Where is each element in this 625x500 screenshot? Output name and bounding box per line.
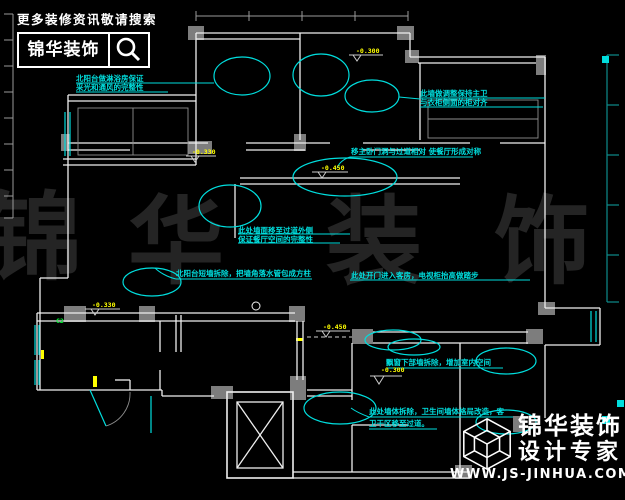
level-marker-1: -0.300 [356,47,379,55]
footer-brand: 锦华装饰 [518,414,622,438]
note-north-balcony: 北阳台短墙拆除，把墙角落水管包成方柱 [176,269,311,278]
note-leaders [76,83,545,429]
note-dining-wall: 此处墙面移至过道外侧保证餐厅空间的完整性 [238,226,313,244]
magnifier-icon [108,34,148,66]
level-marker-5: -0.450 [323,323,346,331]
right-ruler [607,55,619,302]
level-marker-4: -0.330 [92,301,115,309]
window-tag: C2 [56,317,64,325]
banner-tagline: 更多装修资讯敬请搜索 [17,9,157,28]
brand-search-box: 锦华装饰 [17,32,150,68]
level-marker-6: -0.300 [381,366,404,374]
note-balcony-shower: 北阳台做淋浴房保证采光和通风的完整性 [76,74,144,92]
floorplan-canvas: 锦 华 装 饰 [0,0,625,500]
left-ruler [4,14,13,218]
note-master-bath-wall: 此墙做调整保持主卫与衣柜侧面的柜对齐 [420,89,488,107]
footer-url: WWW.JS-JINHUA.COM [450,467,623,482]
company-logo: 锦华装饰 设计专家 WWW.JS-JINHUA.COM [448,390,625,500]
note-guest-room-door: 此处开门进入客房，电视柜抬高做踏步 [351,271,479,280]
revision-clouds [123,54,536,434]
window-markers [602,56,624,424]
search-banner: 更多装修资讯敬请搜索 锦华装饰 [17,9,157,68]
footer-slogan: 设计专家 [518,441,622,463]
brand-name: 锦华装饰 [19,34,108,66]
frame-accents [41,338,303,387]
cube-logo-icon [458,416,516,472]
level-marker-2: -0.330 [192,148,215,156]
window-glazing [35,112,596,433]
top-ruler [196,11,408,21]
note-bedroom-door: 移主卧门洞与过道相对 使餐厅形成对称 [351,147,481,156]
level-marker-3: -0.450 [321,164,344,172]
